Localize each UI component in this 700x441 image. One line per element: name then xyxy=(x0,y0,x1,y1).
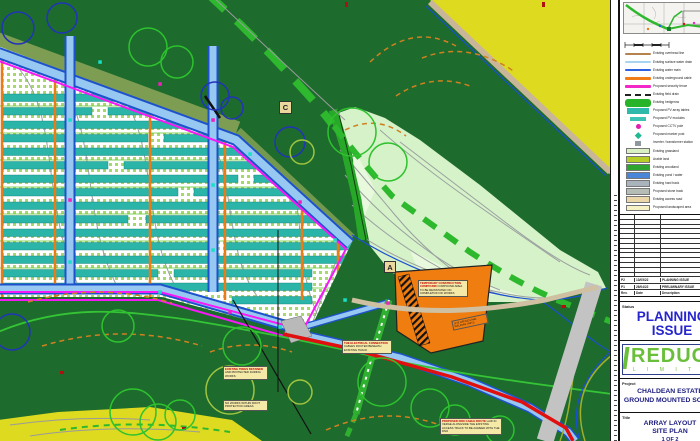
revision-cell: 26/04/22 xyxy=(635,285,661,289)
legend-label: Proposed CCTV pole xyxy=(653,125,683,128)
logo-section: REDUC L I M I T E D xyxy=(620,340,700,378)
legend-label: Inverter / transformer station xyxy=(653,141,693,144)
revision-cell: Rev. xyxy=(620,291,635,295)
legend-row: Proposed security fence xyxy=(623,82,700,90)
title-line-1: ARRAY LAYOUT xyxy=(620,420,700,428)
legend-swatch xyxy=(623,141,653,146)
legend-swatch xyxy=(623,188,653,195)
legend-swatch xyxy=(623,85,653,88)
revision-cell xyxy=(620,268,635,272)
title-line-3: 1 OF 2 xyxy=(620,437,700,441)
legend-swatch xyxy=(623,53,653,56)
legend-row: Existing hard track xyxy=(623,180,700,188)
revision-cell xyxy=(635,239,661,243)
revision-cell xyxy=(635,244,661,248)
revision-cell xyxy=(620,234,635,238)
status-section: Status PLANNING ISSUE xyxy=(620,301,700,340)
revision-cell: P2 xyxy=(620,278,635,282)
legend-label: Proposed marker post xyxy=(653,133,684,136)
legend-label: Existing overhead line xyxy=(653,52,684,55)
legend-row: Existing underground cable xyxy=(623,74,700,82)
legend-row: Proposed landscaped area xyxy=(623,204,700,212)
revision-cell xyxy=(635,263,661,267)
revision-cell xyxy=(620,215,635,219)
revision-cell xyxy=(661,258,700,262)
revision-cell: PLANNING ISSUE xyxy=(661,278,700,282)
key-plan xyxy=(623,2,700,34)
project-label: Project xyxy=(622,381,636,386)
revision-cell: 13/05/22 xyxy=(635,278,661,282)
revision-table: P213/05/22PLANNING ISSUEP126/04/22PRELIM… xyxy=(620,214,700,297)
project-name: CHALDEAN ESTATE GROUND MOUNTED SOLAR xyxy=(620,388,700,406)
revision-cell xyxy=(620,273,635,277)
revision-cell xyxy=(661,253,700,257)
revision-cell xyxy=(661,268,700,272)
logo-subtitle: L I M I T E D xyxy=(633,367,700,373)
revision-cell xyxy=(661,273,700,277)
revision-cell xyxy=(635,253,661,257)
legend-swatch xyxy=(623,156,653,163)
title-block: Existing overhead lineExisting surface w… xyxy=(618,0,700,441)
revision-cell: PRELIMINARY ISSUE xyxy=(661,285,700,289)
drawing-title: ARRAY LAYOUT SITE PLAN 1 OF 2 xyxy=(620,420,700,441)
margin-ruler-ticks xyxy=(614,195,617,441)
revision-cell xyxy=(635,225,661,229)
legend-label: Existing grassland xyxy=(653,150,679,153)
callout-compound: TEMPORARY CONSTRUCTION COMPOUND COMPOUND… xyxy=(418,280,468,297)
legend-label: Proposed landscaped area xyxy=(653,206,691,209)
legend-label: Existing access road xyxy=(653,198,682,201)
legend-label: Proposed PV array tables xyxy=(653,109,689,112)
legend-row: Existing hedgerow xyxy=(623,99,700,107)
revision-cell: Date xyxy=(635,291,661,295)
revision-cell xyxy=(635,229,661,233)
legend-swatch xyxy=(623,180,653,187)
legend-swatch xyxy=(623,69,653,72)
status-value: PLANNING ISSUE xyxy=(632,310,700,338)
section-label-c: C xyxy=(279,101,292,114)
status-label: Status xyxy=(622,304,634,309)
legend-row: Existing access road xyxy=(623,196,700,204)
legend-swatch xyxy=(623,124,653,129)
revision-cell: Description xyxy=(661,291,700,295)
legend-label: Existing pond / water xyxy=(653,174,683,177)
revision-cell xyxy=(661,244,700,248)
section-label-a: A xyxy=(384,261,396,273)
legend-swatch xyxy=(623,117,653,122)
legend-swatch xyxy=(623,196,653,203)
legend-row: Proposed PV array tables xyxy=(623,107,700,115)
legend-label: Proposed PV modules xyxy=(653,117,685,120)
revision-cell xyxy=(635,215,661,219)
callout-electrical: THE ELECTRICAL CONNECTION CABLES ROUTED … xyxy=(342,340,392,354)
legend-label: Existing woodland xyxy=(653,166,679,169)
legend-swatch xyxy=(623,94,653,96)
legend-swatch xyxy=(623,77,653,80)
revision-cell xyxy=(661,229,700,233)
scale-bar xyxy=(624,36,684,45)
project-section: Project CHALDEAN ESTATE GROUND MOUNTED S… xyxy=(620,378,700,412)
callout-trees-lower: NO WORKS WITHIN ROOT PROTECTION AREAS xyxy=(223,400,268,411)
revision-cell xyxy=(620,220,635,224)
legend-label: Existing surface water drain xyxy=(653,61,692,64)
revision-cell xyxy=(661,249,700,253)
callout-dno-route: PROPOSED DNO CABLE ROUTE LAID IN VERGE A… xyxy=(440,418,502,435)
project-line-1: CHALDEAN ESTATE xyxy=(620,388,700,397)
revision-cell xyxy=(635,273,661,277)
site-plan-map xyxy=(0,0,610,441)
legend-row: Proposed stone track xyxy=(623,188,700,196)
title-line-2: SITE PLAN xyxy=(620,428,700,436)
legend: Existing overhead lineExisting surface w… xyxy=(623,50,700,212)
callout-body: NO WORKS WITHIN ROOT PROTECTION AREAS xyxy=(225,401,260,408)
logo-name: REDUC xyxy=(631,345,700,368)
legend-row: Arable land xyxy=(623,155,700,163)
legend-swatch xyxy=(623,164,653,171)
sheet-margin xyxy=(610,0,618,441)
legend-swatch xyxy=(623,133,653,138)
revision-cell: P1 xyxy=(620,285,635,289)
revision-cell xyxy=(661,225,700,229)
callout-body: AND PROTECTED DURING WORKS xyxy=(225,370,261,377)
revision-cell xyxy=(620,225,635,229)
revision-cell xyxy=(620,263,635,267)
revision-row: Rev.DateDescription xyxy=(620,290,700,297)
revision-cell xyxy=(661,220,700,224)
legend-label: Arable land xyxy=(653,158,669,161)
callout-trees-upper: EXISTING TREES RETAINED AND PROTECTED DU… xyxy=(223,366,268,380)
legend-row: Existing woodland xyxy=(623,163,700,171)
legend-label: Existing water main xyxy=(653,69,681,72)
legend-label: Existing underground cable xyxy=(653,77,692,80)
legend-row: Existing overhead line xyxy=(623,50,700,58)
key-plan-map xyxy=(624,3,700,34)
legend-label: Existing field drain xyxy=(653,93,679,96)
legend-row: Existing pond / water xyxy=(623,171,700,179)
project-line-2: GROUND MOUNTED SOLAR xyxy=(620,397,700,406)
revision-cell xyxy=(620,239,635,243)
revision-cell xyxy=(635,258,661,262)
revision-cell xyxy=(635,234,661,238)
revision-cell xyxy=(661,239,700,243)
legend-row: Existing surface water drain xyxy=(623,58,700,66)
company-logo: REDUC L I M I T E D xyxy=(622,344,700,375)
drawing-sheet: C A TEMPORARY CONSTRUCTION COMPOUND COMP… xyxy=(0,0,700,441)
revision-cell xyxy=(635,249,661,253)
legend-swatch xyxy=(623,148,653,155)
revision-cell xyxy=(635,268,661,272)
legend-row: Proposed CCTV pole xyxy=(623,123,700,131)
legend-row: Existing water main xyxy=(623,66,700,74)
legend-swatch xyxy=(623,108,653,114)
revision-cell xyxy=(661,263,700,267)
drawing-title-section: Title ARRAY LAYOUT SITE PLAN 1 OF 2 xyxy=(620,412,700,441)
revision-cell xyxy=(661,234,700,238)
revision-cell xyxy=(620,253,635,257)
revision-cell xyxy=(620,258,635,262)
revision-cell xyxy=(635,220,661,224)
legend-label: Existing hard track xyxy=(653,182,679,185)
revision-cell xyxy=(620,229,635,233)
legend-swatch xyxy=(623,205,653,212)
legend-label: Proposed security fence xyxy=(653,85,687,88)
legend-row: Proposed marker post xyxy=(623,131,700,139)
callout-body: CABLES ROUTED BENEATH EXISTING TRACK xyxy=(344,344,381,351)
legend-row: Existing field drain xyxy=(623,90,700,98)
revision-cell xyxy=(661,215,700,219)
legend-row: Inverter / transformer station xyxy=(623,139,700,147)
legend-label: Existing hedgerow xyxy=(653,101,679,104)
revision-cell xyxy=(620,249,635,253)
legend-swatch xyxy=(623,61,653,64)
revision-cell xyxy=(620,244,635,248)
logo-accent-bar xyxy=(622,347,629,369)
legend-row: Proposed PV modules xyxy=(623,115,700,123)
legend-label: Proposed stone track xyxy=(653,190,683,193)
legend-row: Existing grassland xyxy=(623,147,700,155)
legend-swatch xyxy=(623,172,653,179)
legend-swatch xyxy=(623,99,653,107)
